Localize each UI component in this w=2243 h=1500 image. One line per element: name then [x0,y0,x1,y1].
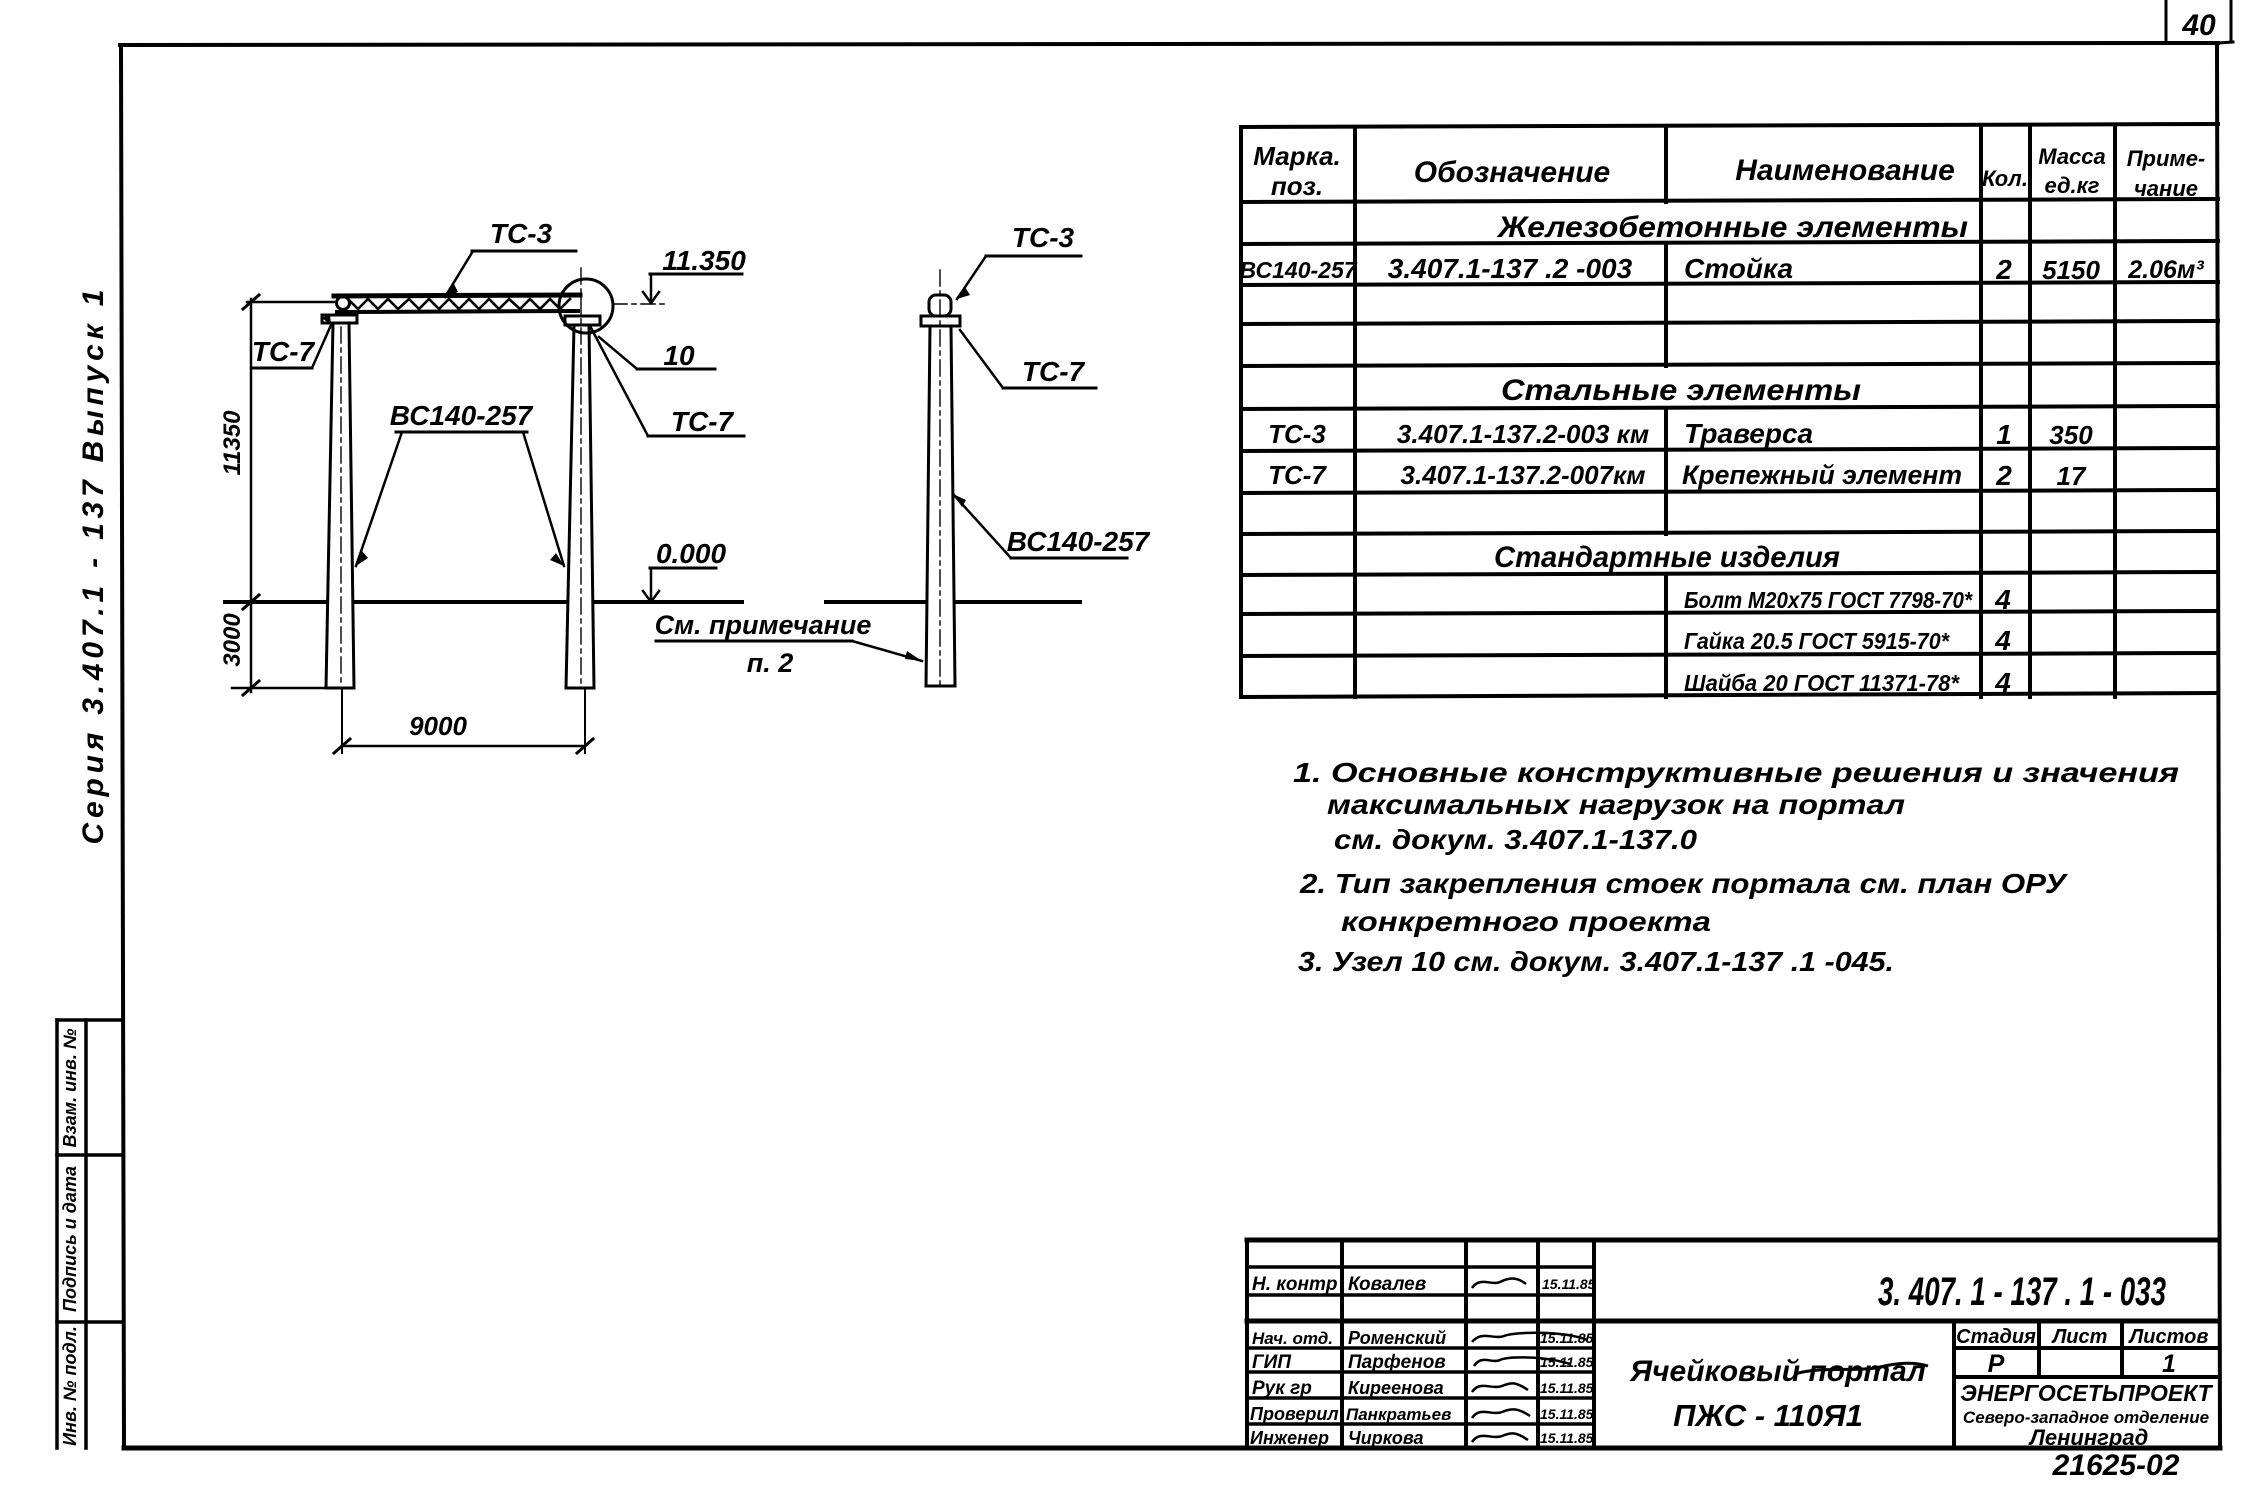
svg-text:1: 1 [1996,419,2012,450]
svg-text:Киреенова: Киреенова [1348,1378,1444,1398]
svg-text:Н. контр: Н. контр [1252,1274,1338,1295]
svg-text:Инженер: Инженер [1250,1428,1329,1448]
svg-text:4: 4 [1994,625,2011,656]
svg-text:Проверил: Проверил [1250,1404,1339,1424]
svg-text:ВС140-257: ВС140-257 [1007,526,1151,557]
svg-text:ТС-3: ТС-3 [490,218,553,249]
svg-text:2: 2 [1995,460,2012,491]
svg-text:3. Узел 10 см. докум. 3.407.1-: 3. Узел 10 см. докум. 3.407.1-137 .1 -04… [1298,946,1894,977]
svg-text:Рук гр: Рук гр [1252,1378,1312,1399]
svg-text:Р: Р [1988,1350,2005,1378]
svg-text:3.407.1-137.2-007км: 3.407.1-137.2-007км [1401,460,1646,490]
svg-text:ед.кг: ед.кг [2044,173,2099,198]
svg-text:1. Основные конструктивные р: 1. Основные конструктивные решения и зна… [1293,757,2179,788]
svg-text:поз.: поз. [1271,171,1323,201]
svg-text:Ячейковый портал: Ячейковый портал [1629,1355,1926,1388]
svg-text:21625-02: 21625-02 [2052,1449,2180,1482]
svg-text:ВС140-257: ВС140-257 [1239,257,1357,283]
svg-text:Ленинград: Ленинград [2028,1425,2148,1450]
svg-text:Серия 3.407.1 - 137 Выпуск: Серия 3.407.1 - 137 Выпуск 1 [77,290,110,845]
svg-text:Стальные элементы: Стальные элементы [1501,374,1861,407]
svg-text:ТС-7: ТС-7 [671,406,735,437]
svg-text:Парфенов: Парфенов [1348,1352,1446,1373]
svg-text:Листов: Листов [2128,1326,2209,1348]
svg-text:См. примечание: См. примечание [655,610,872,640]
svg-text:1: 1 [2162,1350,2176,1378]
svg-text:4: 4 [1994,584,2011,615]
svg-text:4: 4 [1994,667,2011,698]
svg-text:ЭНЕРГОСЕТЬПРОЕКТ: ЭНЕРГОСЕТЬПРОЕКТ [1960,1380,2213,1406]
svg-text:3.407.1-137.2-003 км: 3.407.1-137.2-003 км [1397,419,1649,449]
svg-text:Наименование: Наименование [1735,154,1955,187]
svg-text:15.11.85: 15.11.85 [1542,1276,1596,1292]
svg-text:40: 40 [2181,9,2216,42]
svg-text:конкретного проекта: конкретного проекта [1341,906,1711,937]
svg-text:3. 407. 1 - 137 . 1 - 033: 3. 407. 1 - 137 . 1 - 033 [1878,1270,2166,1314]
svg-text:Масса: Масса [2038,144,2106,169]
svg-text:2.06м³: 2.06м³ [2127,256,2204,284]
svg-text:350: 350 [2049,420,2093,450]
svg-text:3000: 3000 [219,613,246,667]
svg-text:Траверса: Траверса [1684,418,1813,449]
svg-text:2: 2 [1995,254,2012,285]
svg-text:Кол.: Кол. [1982,166,2028,191]
svg-text:10: 10 [663,340,695,371]
svg-text:Подпись и дата: Подпись и дата [60,1166,80,1312]
svg-text:15.11.85: 15.11.85 [1540,1406,1594,1422]
svg-text:Приме-: Приме- [2127,146,2206,171]
svg-text:Инв. № подл.: Инв. № подл. [60,1326,80,1446]
svg-text:3.407.1-137 .2 -003: 3.407.1-137 .2 -003 [1388,253,1633,284]
svg-text:17: 17 [2057,461,2087,491]
svg-text:Роменский: Роменский [1348,1328,1446,1348]
svg-text:ТС-7: ТС-7 [1268,460,1327,490]
svg-text:см. докум. 3.407.1-137.0: см. докум. 3.407.1-137.0 [1334,824,1697,855]
svg-text:п. 2: п. 2 [747,648,794,678]
svg-text:Обозначение: Обозначение [1414,156,1611,189]
svg-text:максимальных нагрузок на по: максимальных нагрузок на портал [1327,789,1905,820]
svg-text:ТС-7: ТС-7 [1022,356,1086,387]
svg-text:ТС-7: ТС-7 [252,336,316,367]
svg-text:Чиркова: Чиркова [1348,1428,1424,1448]
svg-text:Панкратьев: Панкратьев [1346,1405,1451,1424]
svg-text:Стадия: Стадия [1956,1326,2036,1348]
svg-text:15.11.85: 15.11.85 [1540,1430,1594,1446]
svg-text:9000: 9000 [409,711,467,741]
svg-text:0.000: 0.000 [656,538,726,569]
svg-text:Болт М20х75 ГОСТ 7798-70*: Болт М20х75 ГОСТ 7798-70* [1684,587,1973,613]
svg-text:Ковалев: Ковалев [1348,1274,1426,1295]
svg-text:ТС-3: ТС-3 [1012,222,1075,253]
svg-text:ТС-3: ТС-3 [1268,419,1326,449]
svg-text:Шайба 20 ГОСТ 11371-78*: Шайба 20 ГОСТ 11371-78* [1684,670,1960,696]
svg-text:Нач. отд.: Нач. отд. [1252,1329,1333,1348]
svg-text:5150: 5150 [2042,255,2100,285]
svg-text:Взам. инв. №: Взам. инв. № [60,1028,80,1147]
svg-text:ГИП: ГИП [1252,1352,1291,1373]
svg-text:Гайка 20.5 ГОСТ 5915-70*: Гайка 20.5 ГОСТ 5915-70* [1684,628,1950,654]
svg-text:Крепежный элемент: Крепежный элемент [1682,460,1962,490]
svg-text:Железобетонные элементы: Железобетонные элементы [1496,211,1969,244]
svg-text:Стандартные изделия: Стандартные изделия [1494,541,1840,574]
svg-text:Лист: Лист [2051,1326,2108,1348]
svg-text:Стойка: Стойка [1684,253,1793,284]
svg-text:2. Тип закрепления стоек по: 2. Тип закрепления стоек портала см. пла… [1299,868,2068,899]
svg-text:15.11.85: 15.11.85 [1540,1380,1594,1396]
svg-text:11.350: 11.350 [662,245,746,276]
svg-text:ПЖС - 110Я1: ПЖС - 110Я1 [1673,1398,1863,1433]
svg-text:Марка.: Марка. [1253,141,1341,171]
svg-text:ВС140-257: ВС140-257 [390,400,534,431]
svg-text:чание: чание [2134,176,2198,201]
svg-text:11350: 11350 [219,410,246,476]
